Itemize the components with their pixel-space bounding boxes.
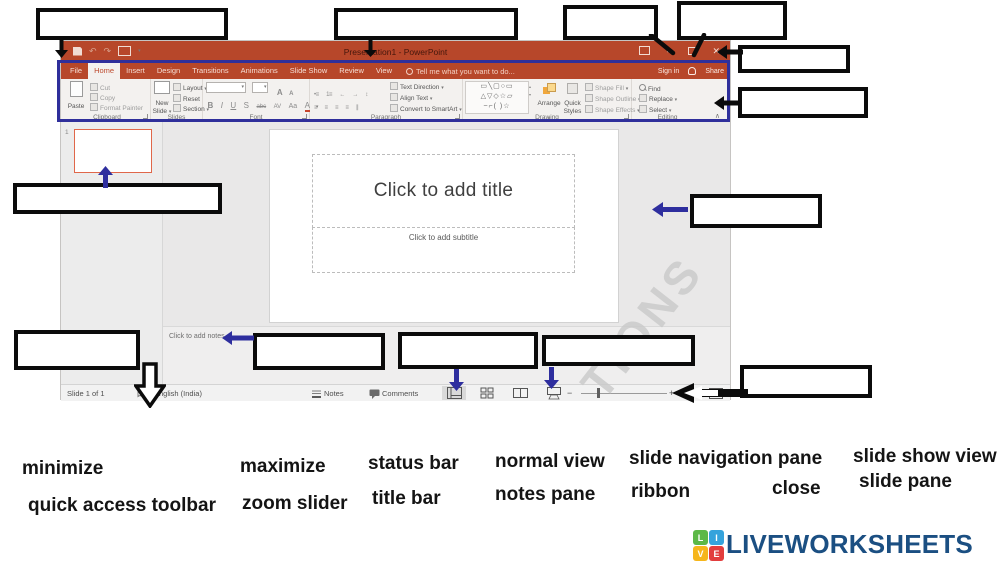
word-zoom-slider: zoom slider — [242, 493, 348, 515]
logo-square-v: V — [693, 546, 708, 561]
answer-box-slide-pane[interactable] — [690, 194, 822, 228]
word-slide-show-view: slide show view — [853, 446, 997, 468]
comments-icon — [369, 389, 380, 399]
reading-view-icon — [513, 387, 528, 399]
slide-thumbnail[interactable] — [74, 129, 152, 173]
answer-box-slide-show-view[interactable] — [542, 335, 695, 366]
logo-square-i: I — [709, 530, 724, 545]
notes-toggle[interactable]: Notes — [324, 389, 344, 398]
subtitle-placeholder[interactable]: Click to add subtitle — [312, 227, 575, 273]
ribbon-highlight-rectangle — [57, 60, 730, 122]
arrow-to-normal-view-icon — [449, 369, 464, 391]
answer-box-notes-pane[interactable] — [253, 333, 385, 370]
arrow-to-notes-pane — [222, 331, 254, 345]
word-close: close — [772, 478, 821, 500]
answer-box-zoom-slider[interactable] — [740, 365, 872, 398]
slide-sorter-view-button[interactable] — [475, 386, 499, 400]
window-title: Presentation1 - PowerPoint — [61, 47, 730, 57]
arrow-to-close-button — [717, 45, 743, 59]
word-maximize: maximize — [240, 456, 326, 478]
word-ribbon: ribbon — [631, 481, 690, 503]
word-minimize: minimize — [22, 458, 103, 480]
word-slide-pane: slide pane — [859, 471, 952, 493]
slide-pane[interactable]: Click to add title Click to add subtitle — [269, 129, 619, 323]
answer-box-normal-view[interactable] — [398, 332, 538, 369]
line-to-maximize-button — [688, 33, 708, 58]
word-quick-access-toolbar: quick access toolbar — [28, 495, 216, 517]
arrow-to-slide-show-icon — [544, 367, 559, 389]
word-normal-view: normal view — [495, 451, 605, 473]
answer-box-title-bar[interactable] — [334, 8, 518, 40]
slide-count-label: Slide 1 of 1 — [67, 389, 105, 398]
slide-sorter-icon — [480, 387, 494, 399]
word-notes-pane: notes pane — [495, 484, 595, 506]
hollow-arrow-to-status-bar — [134, 362, 166, 408]
answer-box-close[interactable] — [738, 45, 850, 73]
notes-icon — [311, 390, 322, 399]
answer-box-status-bar[interactable] — [14, 330, 140, 370]
comments-toggle[interactable]: Comments — [382, 389, 418, 398]
arrow-to-slide-pane — [652, 202, 688, 217]
answer-box-ribbon[interactable] — [738, 87, 868, 118]
arrow-to-slide-thumbnail — [98, 166, 113, 188]
arrow-to-title-bar — [364, 40, 377, 57]
line-to-minimize-button — [648, 34, 676, 56]
logo-square-l: L — [693, 530, 708, 545]
liveworksheets-logo: LIVEWORKSHEETS — [726, 529, 973, 560]
answer-box-slide-navigation-pane[interactable] — [13, 183, 222, 214]
arrow-to-zoom-slider — [668, 381, 750, 405]
notes-placeholder: Click to add notes — [169, 333, 225, 340]
worksheet-page: ↶ ↷ ▾ Presentation1 - PowerPoint – ✕ Fil… — [0, 0, 1000, 571]
answer-box-minimize[interactable] — [563, 5, 658, 40]
word-slide-navigation-pane: slide navigation pane — [629, 448, 822, 470]
arrow-to-ribbon — [714, 96, 740, 110]
slide-thumbnail-number: 1 — [65, 129, 69, 136]
answer-box-quick-access-toolbar[interactable] — [36, 8, 228, 40]
arrow-to-quick-access-toolbar — [55, 38, 68, 58]
title-placeholder[interactable]: Click to add title — [312, 154, 575, 228]
word-status-bar: status bar — [368, 453, 459, 475]
word-title-bar: title bar — [372, 488, 441, 510]
reading-view-button[interactable] — [508, 386, 532, 400]
logo-square-e: E — [709, 546, 724, 561]
